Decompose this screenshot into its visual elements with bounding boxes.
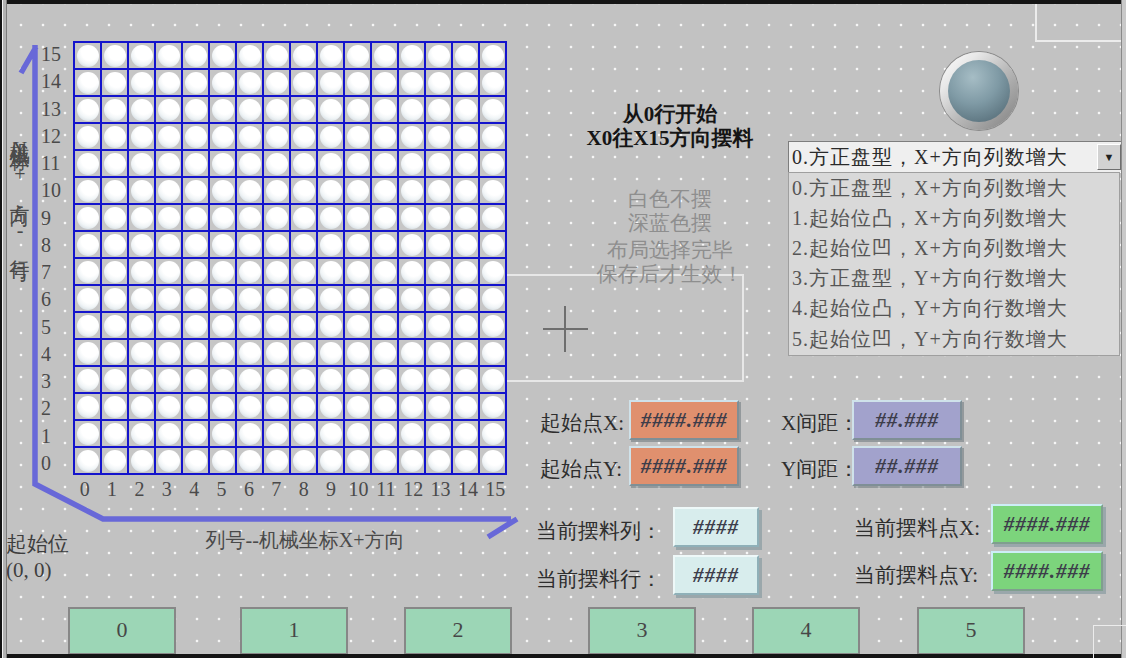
status-lamp[interactable] bbox=[940, 52, 1018, 130]
row-label: 11 bbox=[41, 150, 61, 177]
hmi-tray-layout-screen: 机械坐标Y+方向--行号 1514131211109876543210 0123… bbox=[0, 0, 1126, 658]
current-point-x-value: ####.### bbox=[1004, 512, 1091, 537]
row-number-labels: 1514131211109876543210 bbox=[41, 41, 61, 477]
layout-option-4[interactable]: 4.起始位凸，Y+方向行数增大 bbox=[789, 294, 1119, 324]
col-label: 0 bbox=[71, 478, 98, 501]
col-label: 8 bbox=[290, 478, 317, 501]
screen-border bbox=[0, 654, 1126, 658]
screen-border bbox=[0, 0, 7, 658]
column-number-labels: 0123456789101112131415 bbox=[71, 478, 509, 501]
row-label: 7 bbox=[41, 259, 61, 286]
hint-line2: 保存后才生效！ bbox=[545, 262, 795, 286]
legend-blue: 深蓝色摆 bbox=[545, 211, 795, 235]
x-gap-label: X间距： bbox=[781, 409, 859, 437]
col-label: 5 bbox=[208, 478, 235, 501]
row-label: 3 bbox=[41, 368, 61, 395]
col-label: 4 bbox=[181, 478, 208, 501]
row-label: 6 bbox=[41, 286, 61, 313]
row-label: 14 bbox=[41, 68, 61, 95]
current-point-y-value: ####.### bbox=[1004, 559, 1091, 584]
current-col-field[interactable]: #### bbox=[673, 507, 759, 547]
color-legend-note: 白色不摆 深蓝色摆 bbox=[545, 187, 795, 235]
row-label: 5 bbox=[41, 314, 61, 341]
layout-option-2[interactable]: 2.起始位凹，X+方向列数增大 bbox=[789, 233, 1119, 263]
row-label: 2 bbox=[41, 395, 61, 422]
row-label: 8 bbox=[41, 232, 61, 259]
start-y-value: ####.### bbox=[641, 454, 728, 479]
col-label: 14 bbox=[454, 478, 481, 501]
page-button-4[interactable]: 4 bbox=[752, 607, 860, 655]
col-label: 15 bbox=[482, 478, 509, 501]
col-label: 13 bbox=[427, 478, 454, 501]
row-label: 4 bbox=[41, 341, 61, 368]
current-point-y-field[interactable]: ####.### bbox=[991, 551, 1103, 591]
layout-option-5[interactable]: 5.起始位凹，Y+方向行数增大 bbox=[789, 324, 1119, 354]
status-lamp-lens bbox=[948, 60, 1010, 122]
current-col-label: 当前摆料列： bbox=[536, 517, 662, 545]
current-col-value: #### bbox=[693, 515, 739, 540]
layout-type-option-list: 0.方正盘型，X+方向列数增大1.起始位凸，X+方向列数增大2.起始位凹，X+方… bbox=[788, 172, 1120, 356]
row-label: 13 bbox=[41, 96, 61, 123]
page-button-0[interactable]: 0 bbox=[68, 607, 176, 655]
corner-outline-top-right bbox=[1035, 2, 1126, 42]
machine-axes-arrow bbox=[0, 0, 545, 550]
crosshair-icon bbox=[564, 306, 566, 352]
start-x-field[interactable]: ####.### bbox=[629, 400, 739, 440]
col-label: 9 bbox=[317, 478, 344, 501]
layout-option-3[interactable]: 3.方正盘型，Y+方向行数增大 bbox=[789, 264, 1119, 294]
layout-option-1[interactable]: 1.起始位凸，X+方向列数增大 bbox=[789, 203, 1119, 233]
page-button-1[interactable]: 1 bbox=[240, 607, 348, 655]
y-axis-label: 机械坐标Y+方向--行号 bbox=[7, 126, 34, 250]
screen-border bbox=[1121, 0, 1126, 658]
legend-white: 白色不摆 bbox=[545, 187, 795, 211]
col-label: 12 bbox=[400, 478, 427, 501]
row-label: 1 bbox=[41, 423, 61, 450]
page-button-3[interactable]: 3 bbox=[588, 607, 696, 655]
y-gap-field[interactable]: ##.### bbox=[852, 446, 962, 486]
col-label: 6 bbox=[235, 478, 262, 501]
current-point-y-label: 当前摆料点Y: bbox=[854, 561, 978, 589]
screen-border bbox=[0, 0, 1126, 4]
x-gap-value: ##.### bbox=[875, 408, 939, 433]
corner-outline-bottom-right bbox=[1093, 625, 1126, 658]
col-label: 10 bbox=[345, 478, 372, 501]
current-row-label: 当前摆料行： bbox=[536, 565, 662, 593]
save-hint-note: 布局选择完毕 保存后才生效！ bbox=[545, 238, 795, 286]
current-row-value: #### bbox=[693, 563, 739, 588]
row-label: 12 bbox=[41, 123, 61, 150]
row-label: 10 bbox=[41, 177, 61, 204]
row-label: 15 bbox=[41, 41, 61, 68]
header-line1: 从0行开始 bbox=[540, 102, 800, 126]
y-gap-value: ##.### bbox=[875, 454, 939, 479]
layout-type-select[interactable]: 0.方正盘型，X+方向列数增大 ▼ bbox=[788, 141, 1124, 173]
origin-label-line2: (0, 0) bbox=[6, 557, 69, 583]
page-button-2[interactable]: 2 bbox=[404, 607, 512, 655]
start-x-value: ####.### bbox=[641, 408, 728, 433]
current-point-x-field[interactable]: ####.### bbox=[991, 504, 1103, 544]
col-label: 2 bbox=[126, 478, 153, 501]
x-gap-field[interactable]: ##.### bbox=[852, 400, 962, 440]
chevron-down-icon[interactable]: ▼ bbox=[1097, 144, 1121, 170]
y-gap-label: Y间距： bbox=[781, 455, 859, 483]
layout-type-selected-value: 0.方正盘型，X+方向列数增大 bbox=[789, 144, 1097, 171]
placement-direction-header: 从0行开始 X0往X15方向摆料 bbox=[540, 102, 800, 150]
row-label: 0 bbox=[41, 450, 61, 477]
start-x-label: 起始点X: bbox=[540, 409, 624, 437]
current-point-x-label: 当前摆料点X: bbox=[854, 514, 980, 542]
start-y-label: 起始点Y: bbox=[540, 455, 622, 483]
layout-option-0[interactable]: 0.方正盘型，X+方向列数增大 bbox=[789, 173, 1119, 203]
col-label: 7 bbox=[263, 478, 290, 501]
hint-line1: 布局选择完毕 bbox=[545, 238, 795, 262]
col-label: 3 bbox=[153, 478, 180, 501]
page-button-5[interactable]: 5 bbox=[917, 607, 1025, 655]
col-label: 11 bbox=[372, 478, 399, 501]
current-row-field[interactable]: #### bbox=[673, 555, 759, 595]
row-label: 9 bbox=[41, 205, 61, 232]
header-line2: X0往X15方向摆料 bbox=[540, 126, 800, 150]
start-y-field[interactable]: ####.### bbox=[629, 446, 739, 486]
col-label: 1 bbox=[98, 478, 125, 501]
